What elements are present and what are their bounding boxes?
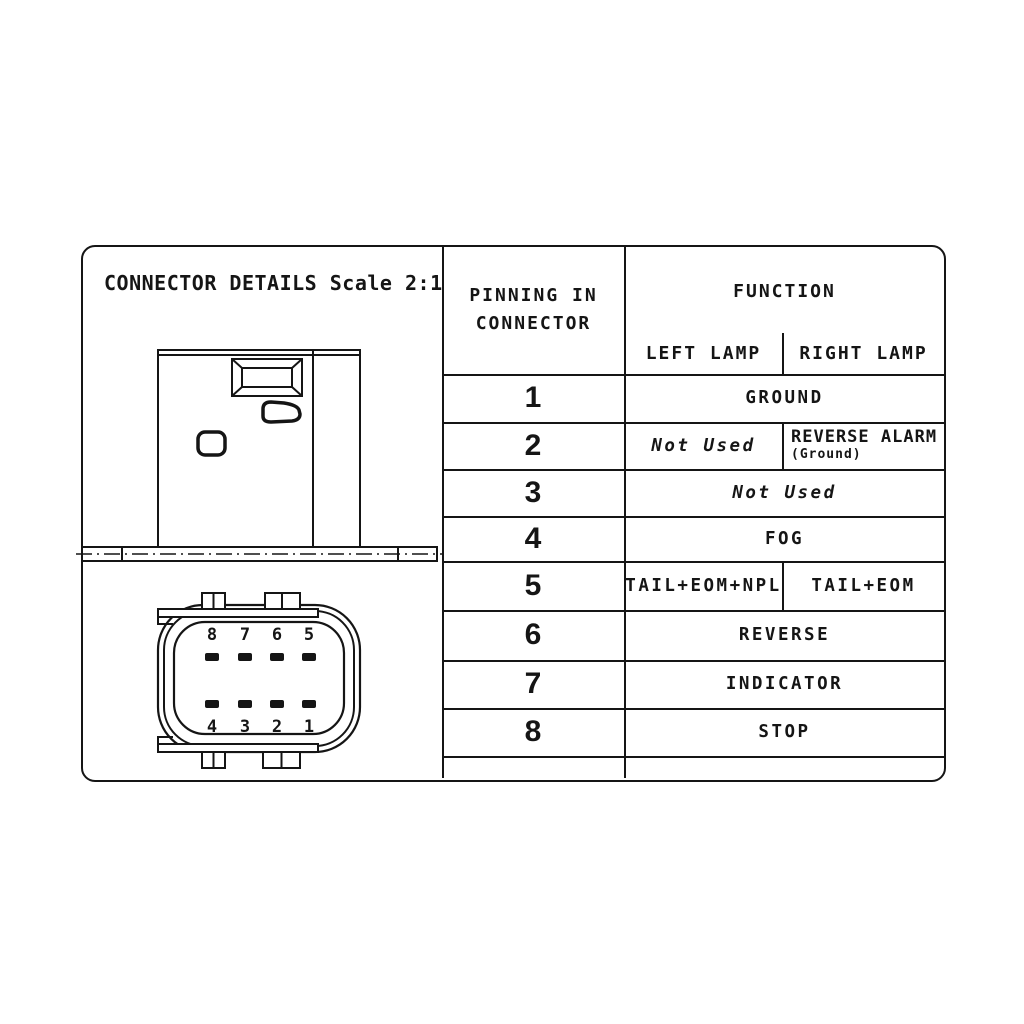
pin-label-1: 1 — [304, 717, 314, 737]
pin-slot — [205, 700, 219, 708]
pin-label-2: 2 — [272, 717, 282, 737]
pin-label-3: 3 — [240, 717, 250, 737]
pin-label-6: 6 — [272, 625, 282, 645]
pin-slot — [302, 700, 316, 708]
pin-label-8: 8 — [207, 625, 217, 645]
connector-details-diagram: CONNECTOR DETAILS Scale 2:1 PINNING IN C… — [0, 0, 1024, 1024]
pin-slot — [238, 700, 252, 708]
pin-slot — [270, 653, 284, 661]
pin-label-5: 5 — [304, 625, 314, 645]
side-view-drawing — [76, 350, 442, 561]
front-face-outline — [174, 622, 344, 734]
pin-slot — [302, 653, 316, 661]
latch-inner — [242, 368, 292, 387]
lock-nub — [263, 402, 300, 422]
pin-slot — [270, 700, 284, 708]
pin-label-7: 7 — [240, 625, 250, 645]
connector-drawing: 8 7 6 5 4 3 2 1 — [0, 0, 1024, 1024]
front-bottom-bar — [158, 744, 318, 752]
pin-slot — [238, 653, 252, 661]
front-top-bar — [158, 609, 318, 617]
pin-label-4: 4 — [207, 717, 217, 737]
connector-body-outline — [158, 350, 360, 547]
side-slot — [198, 432, 225, 455]
pin-slot — [205, 653, 219, 661]
front-view-drawing: 8 7 6 5 4 3 2 1 — [158, 593, 360, 768]
